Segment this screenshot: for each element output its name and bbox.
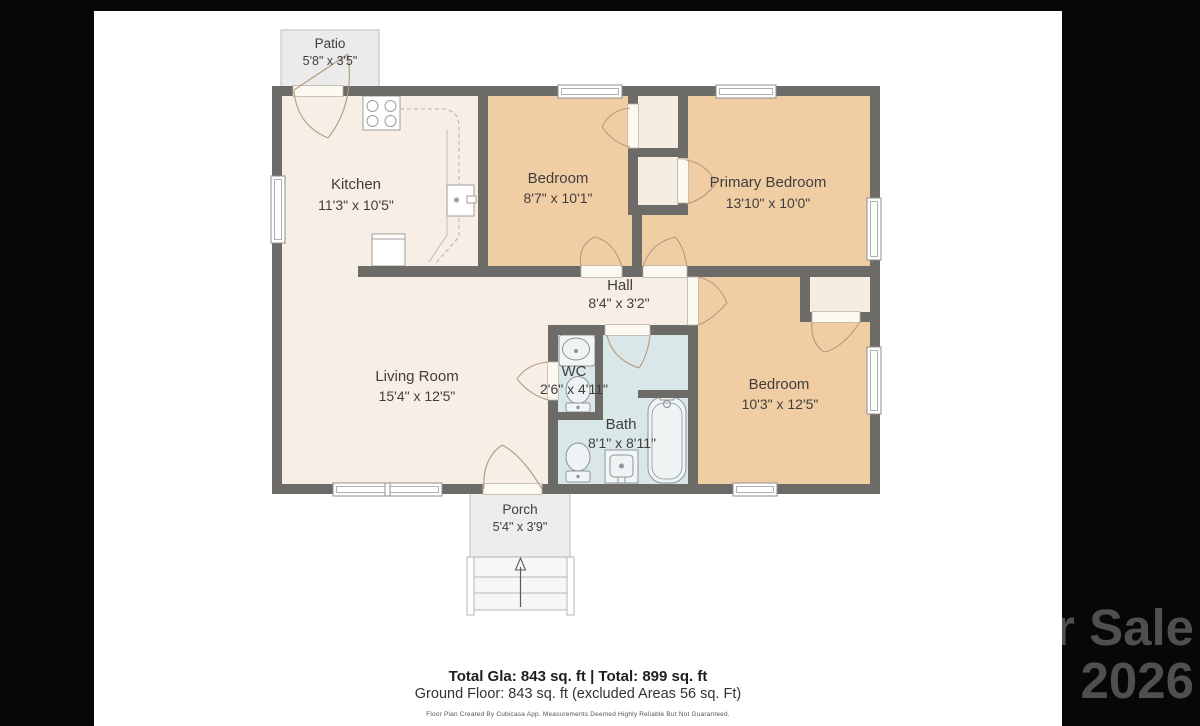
room-label-hall: Hall xyxy=(607,277,633,294)
room-dims-living: 15'4" x 12'5" xyxy=(379,388,456,404)
photo-viewer: { "watermark": { "line1": "For Sale", "l… xyxy=(0,0,1200,726)
window-icon xyxy=(867,198,881,260)
room-dims-primary: 13'10" x 10'0" xyxy=(726,195,811,211)
disclaimer-line: Floor Plan Created By Cubicasa App. Meas… xyxy=(94,711,1062,718)
stove-icon xyxy=(363,96,400,130)
room-label-bath: Bath xyxy=(606,416,637,433)
window-icon xyxy=(558,85,622,98)
vanity-sink-icon xyxy=(605,450,638,483)
wc-sink-icon xyxy=(559,335,595,366)
plan-summary: Total Gla: 843 sq. ft | Total: 899 sq. f… xyxy=(94,668,1062,718)
window-icon xyxy=(716,85,776,98)
room-label-patio: Patio xyxy=(315,36,346,51)
room-label-living: Living Room xyxy=(375,368,458,385)
room-dims-bedroom1: 8'7" x 10'1" xyxy=(524,190,593,206)
room-dims-bath: 8'1" x 8'11" xyxy=(588,435,656,451)
room-dims-hall: 8'4" x 3'2" xyxy=(588,295,649,311)
window-icon xyxy=(333,483,442,496)
total-area-line: Total Gla: 843 sq. ft | Total: 899 sq. f… xyxy=(94,668,1062,685)
room-dims-patio: 5'8" x 3'5" xyxy=(303,54,358,68)
room-dims-bedroom3: 10'3" x 12'5" xyxy=(742,396,819,412)
room-dims-wc: 2'6" x 4'11" xyxy=(540,381,608,397)
ground-floor-line: Ground Floor: 843 sq. ft (excluded Areas… xyxy=(94,686,1062,702)
floorplan: Patio 5'8" x 3'5" Kitchen 11'3" x 10'5" … xyxy=(0,0,1200,726)
room-dims-porch: 5'4" x 3'9" xyxy=(493,520,548,534)
room-label-kitchen: Kitchen xyxy=(331,176,381,193)
window-icon xyxy=(733,483,777,496)
window-icon xyxy=(867,347,881,414)
bath-toilet-icon xyxy=(566,443,590,482)
room-label-primary: Primary Bedroom xyxy=(710,174,827,191)
fridge-icon xyxy=(372,234,405,266)
room-label-bedroom3: Bedroom xyxy=(749,376,810,393)
window-icon xyxy=(271,176,285,243)
room-dims-kitchen: 11'3" x 10'5" xyxy=(318,197,394,213)
room-label-porch: Porch xyxy=(502,502,537,517)
room-label-bedroom1: Bedroom xyxy=(528,170,589,187)
kitchen-sink-icon xyxy=(447,185,476,216)
room-label-wc: WC xyxy=(562,363,587,380)
floors xyxy=(282,96,870,484)
